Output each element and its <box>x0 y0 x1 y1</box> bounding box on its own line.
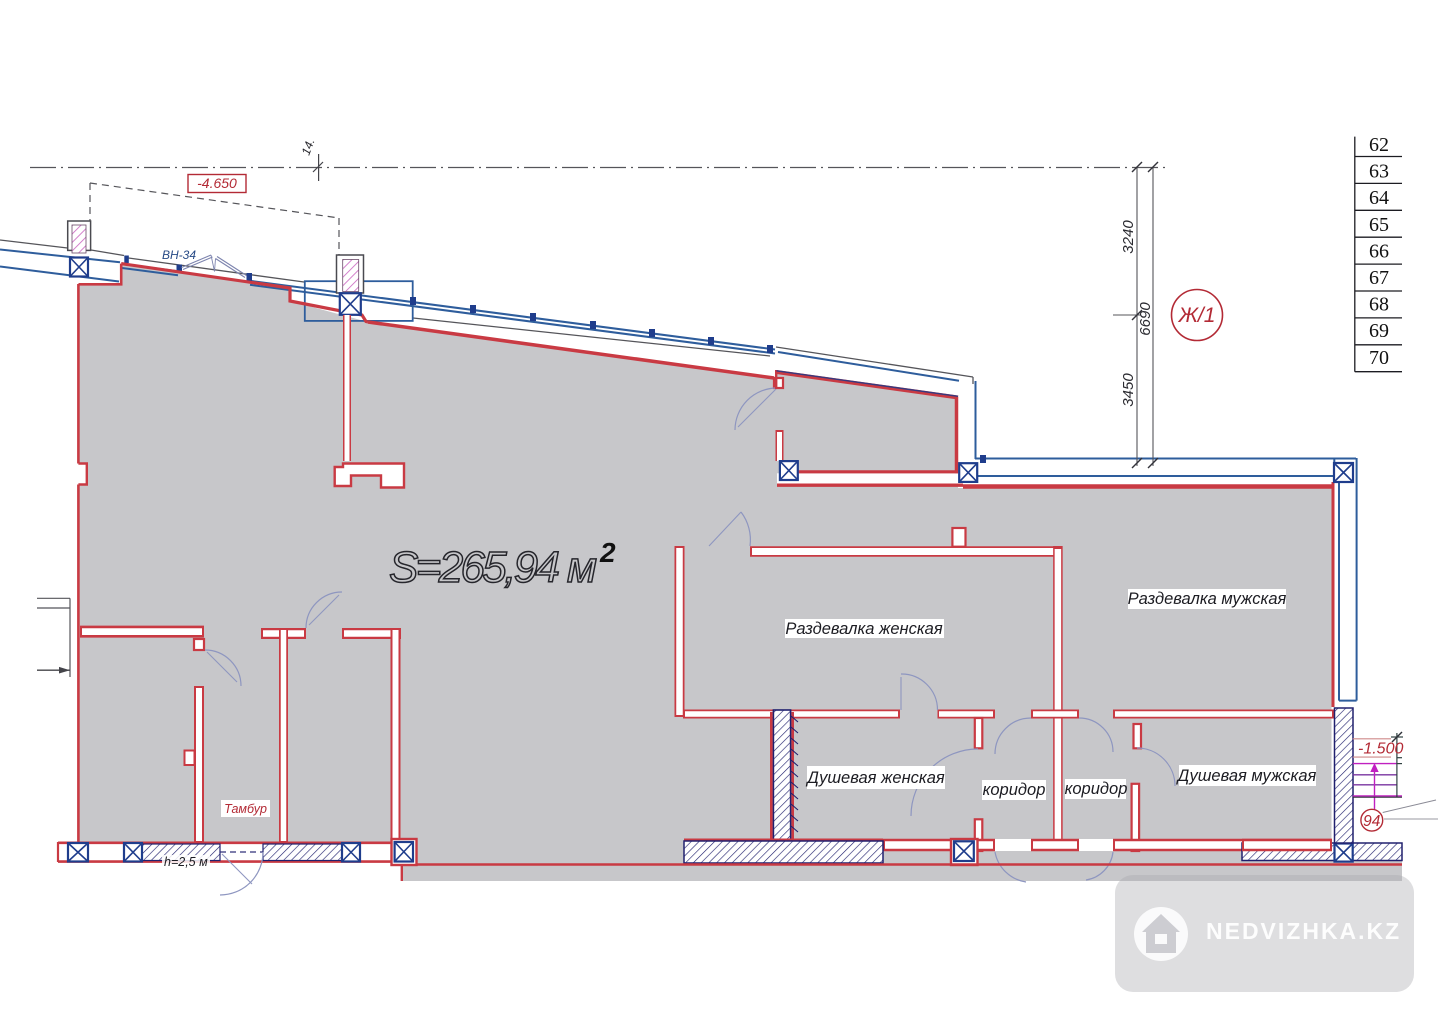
svg-text:63: 63 <box>1369 161 1389 183</box>
svg-text:6690: 6690 <box>1137 302 1154 336</box>
svg-text:ВН-34: ВН-34 <box>162 248 196 262</box>
svg-text:70: 70 <box>1369 347 1389 369</box>
svg-text:Раздевалка мужская: Раздевалка мужская <box>1128 590 1287 608</box>
svg-text:65: 65 <box>1369 214 1389 236</box>
svg-text:S=265,94 м: S=265,94 м <box>389 543 597 592</box>
svg-text:69: 69 <box>1369 320 1389 342</box>
svg-text:коридор: коридор <box>983 781 1046 799</box>
svg-text:68: 68 <box>1369 294 1389 316</box>
svg-text:94: 94 <box>1363 813 1381 830</box>
svg-text:коридор: коридор <box>1065 780 1128 798</box>
svg-text:3450: 3450 <box>1120 373 1137 407</box>
svg-text:66: 66 <box>1369 240 1389 262</box>
svg-text:-4.650: -4.650 <box>197 175 237 191</box>
svg-text:62: 62 <box>1369 134 1389 156</box>
svg-text:Раздевалка женская: Раздевалка женская <box>785 620 943 638</box>
svg-text:Тамбур: Тамбур <box>224 802 267 816</box>
svg-text:Душевая женская: Душевая женская <box>805 769 945 787</box>
svg-text:Душевая мужская: Душевая мужская <box>1176 767 1317 785</box>
svg-text:-1.500: -1.500 <box>1358 741 1403 758</box>
svg-text:NEDVIZHKA.KZ: NEDVIZHKA.KZ <box>1206 918 1401 944</box>
svg-text:3240: 3240 <box>1120 220 1137 254</box>
svg-text:64: 64 <box>1369 187 1389 209</box>
svg-text:2: 2 <box>599 537 616 568</box>
svg-text:Ж/1: Ж/1 <box>1178 304 1216 327</box>
svg-text:h=2,5 м: h=2,5 м <box>164 855 208 869</box>
svg-text:67: 67 <box>1369 267 1389 289</box>
